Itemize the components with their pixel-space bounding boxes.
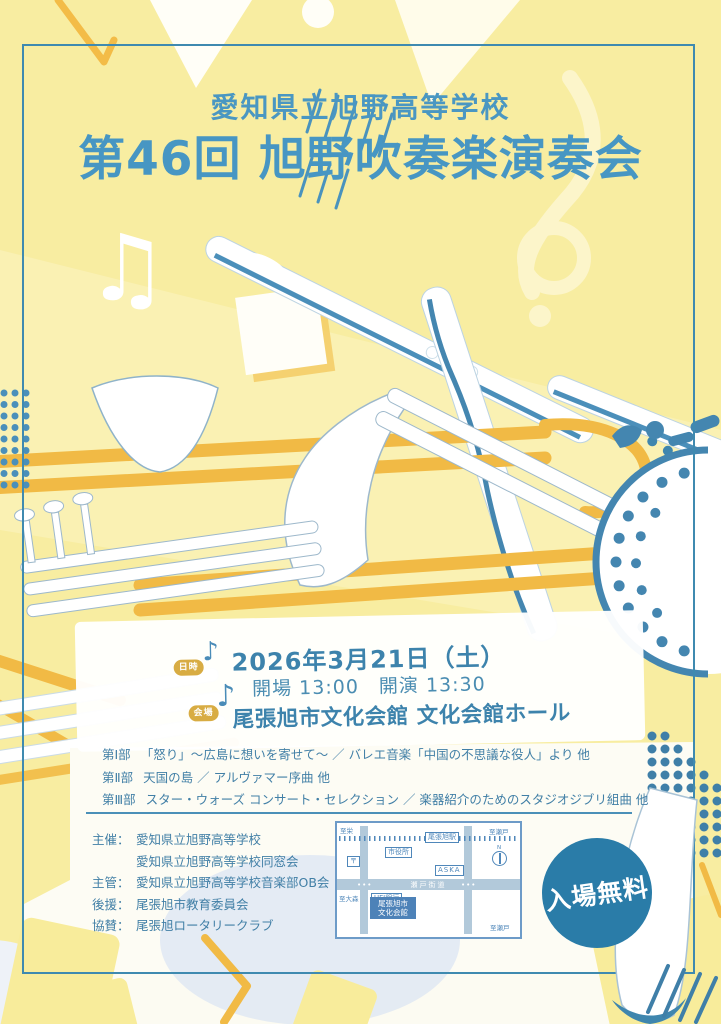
- credit-row: 愛知県立旭野高等学校同窓会: [92, 851, 329, 873]
- program-part-1: 第Ⅰ部「怒り」～広島に想いを寄せて～ ／ バレエ音楽「中国の不思議な役人」より …: [102, 744, 648, 767]
- credit-row: 後援：尾張旭市教育委員会: [92, 894, 329, 916]
- part-pieces: 天国の島 ／ アルヴァマー序曲 他: [143, 770, 330, 785]
- credit-label: 協賛：: [92, 915, 136, 934]
- traffic-dots: •••: [461, 881, 476, 889]
- compass-icon: N: [492, 851, 507, 866]
- part-pieces: 「怒り」～広島に想いを寄せて～ ／ バレエ音楽「中国の不思議な役人」より 他: [141, 747, 590, 762]
- free-admission-text: 入場無料: [543, 868, 651, 918]
- music-notes-icon: ♫: [86, 215, 168, 322]
- credit-value: 尾張旭市教育委員会: [136, 897, 249, 912]
- map-hall-line2: 文化会館: [371, 908, 415, 917]
- credit-row: 協賛：尾張旭ロータリークラブ: [92, 915, 329, 937]
- gold-zigzag-top: [58, 0, 114, 62]
- credit-label: 主管：: [92, 872, 136, 891]
- map-aska-label: ASKA: [435, 865, 464, 876]
- map-to-seto-top: 至瀬戸: [489, 826, 509, 836]
- venue-badge: 会場: [188, 705, 218, 722]
- map-road-horizontal: 瀬戸街道 ••• •••: [337, 879, 520, 890]
- venue-name: 尾張旭市文化会館 文化会館ホール: [232, 696, 571, 734]
- compass-needle: [499, 853, 501, 864]
- map-hall-line1: 尾張旭市: [371, 899, 415, 908]
- credit-value: 愛知県立旭野高等学校: [136, 832, 261, 847]
- part-label: 第Ⅱ部: [102, 770, 133, 785]
- program-part-3: 第Ⅲ部スター・ウォーズ コンサート・セレクション ／ 楽器紹介のためのスタジオジ…: [102, 789, 648, 812]
- part-label: 第Ⅰ部: [102, 747, 131, 762]
- traffic-dots: •••: [357, 881, 372, 889]
- map-hall-label: 尾張旭市 文化会館: [370, 897, 416, 919]
- datetime-badge: 日時: [174, 659, 204, 676]
- map-to-omori: 至大森: [339, 893, 359, 903]
- white-triangle: [150, 0, 252, 88]
- credit-label: 主催：: [92, 829, 136, 848]
- divider-line: [86, 812, 632, 814]
- map-post-office-label: 〒: [347, 856, 360, 867]
- eighth-note-icon: ♪: [202, 637, 219, 667]
- part-label: 第Ⅲ部: [102, 792, 136, 807]
- part-pieces: スター・ウォーズ コンサート・セレクション ／ 楽器紹介のためのスタジオジブリ組…: [146, 792, 649, 807]
- map-to-sakae: 至栄: [340, 825, 353, 835]
- credit-value: 尾張旭ロータリークラブ: [136, 918, 274, 933]
- credit-row: 主催：愛知県立旭野高等学校: [92, 829, 329, 851]
- program-list: 第Ⅰ部「怒り」～広島に想いを寄せて～ ／ バレエ音楽「中国の不思議な役人」より …: [102, 744, 648, 812]
- dots-pattern-left: [1, 390, 30, 489]
- poster-title: 第46回 旭野吹奏楽演奏会: [0, 120, 721, 189]
- credit-row: 主管：愛知県立旭野高等学校音楽部OB会: [92, 872, 329, 894]
- map-to-seto-bottom: 至瀬戸: [490, 922, 510, 932]
- credit-value: 愛知県立旭野高等学校音楽部OB会: [136, 875, 329, 890]
- compass-north-label: N: [497, 845, 501, 851]
- credit-label: 後援：: [92, 894, 136, 913]
- credits-list: 主催：愛知県立旭野高等学校 愛知県立旭野高等学校同窓会 主管：愛知県立旭野高等学…: [92, 829, 329, 937]
- access-map: 至栄 至瀬戸 尾張旭駅 市役所 〒 N ASKA 瀬戸街道 ••• ••• 至大…: [335, 821, 522, 939]
- white-blob: [302, 0, 334, 28]
- map-city-hall-label: 市役所: [385, 847, 412, 858]
- datetime-venue-panel: 日時 ♪ 2026年3月21日（土） 開場 13:00 開演 13:30 会場 …: [75, 610, 646, 752]
- program-part-2: 第Ⅱ部天国の島 ／ アルヴァマー序曲 他: [102, 767, 648, 790]
- map-station-label: 尾張旭駅: [425, 832, 459, 843]
- credit-value: 愛知県立旭野高等学校同窓会: [136, 854, 299, 869]
- event-times: 開場 13:00 開演 13:30: [252, 669, 486, 701]
- free-admission-badge: 入場無料: [542, 838, 652, 948]
